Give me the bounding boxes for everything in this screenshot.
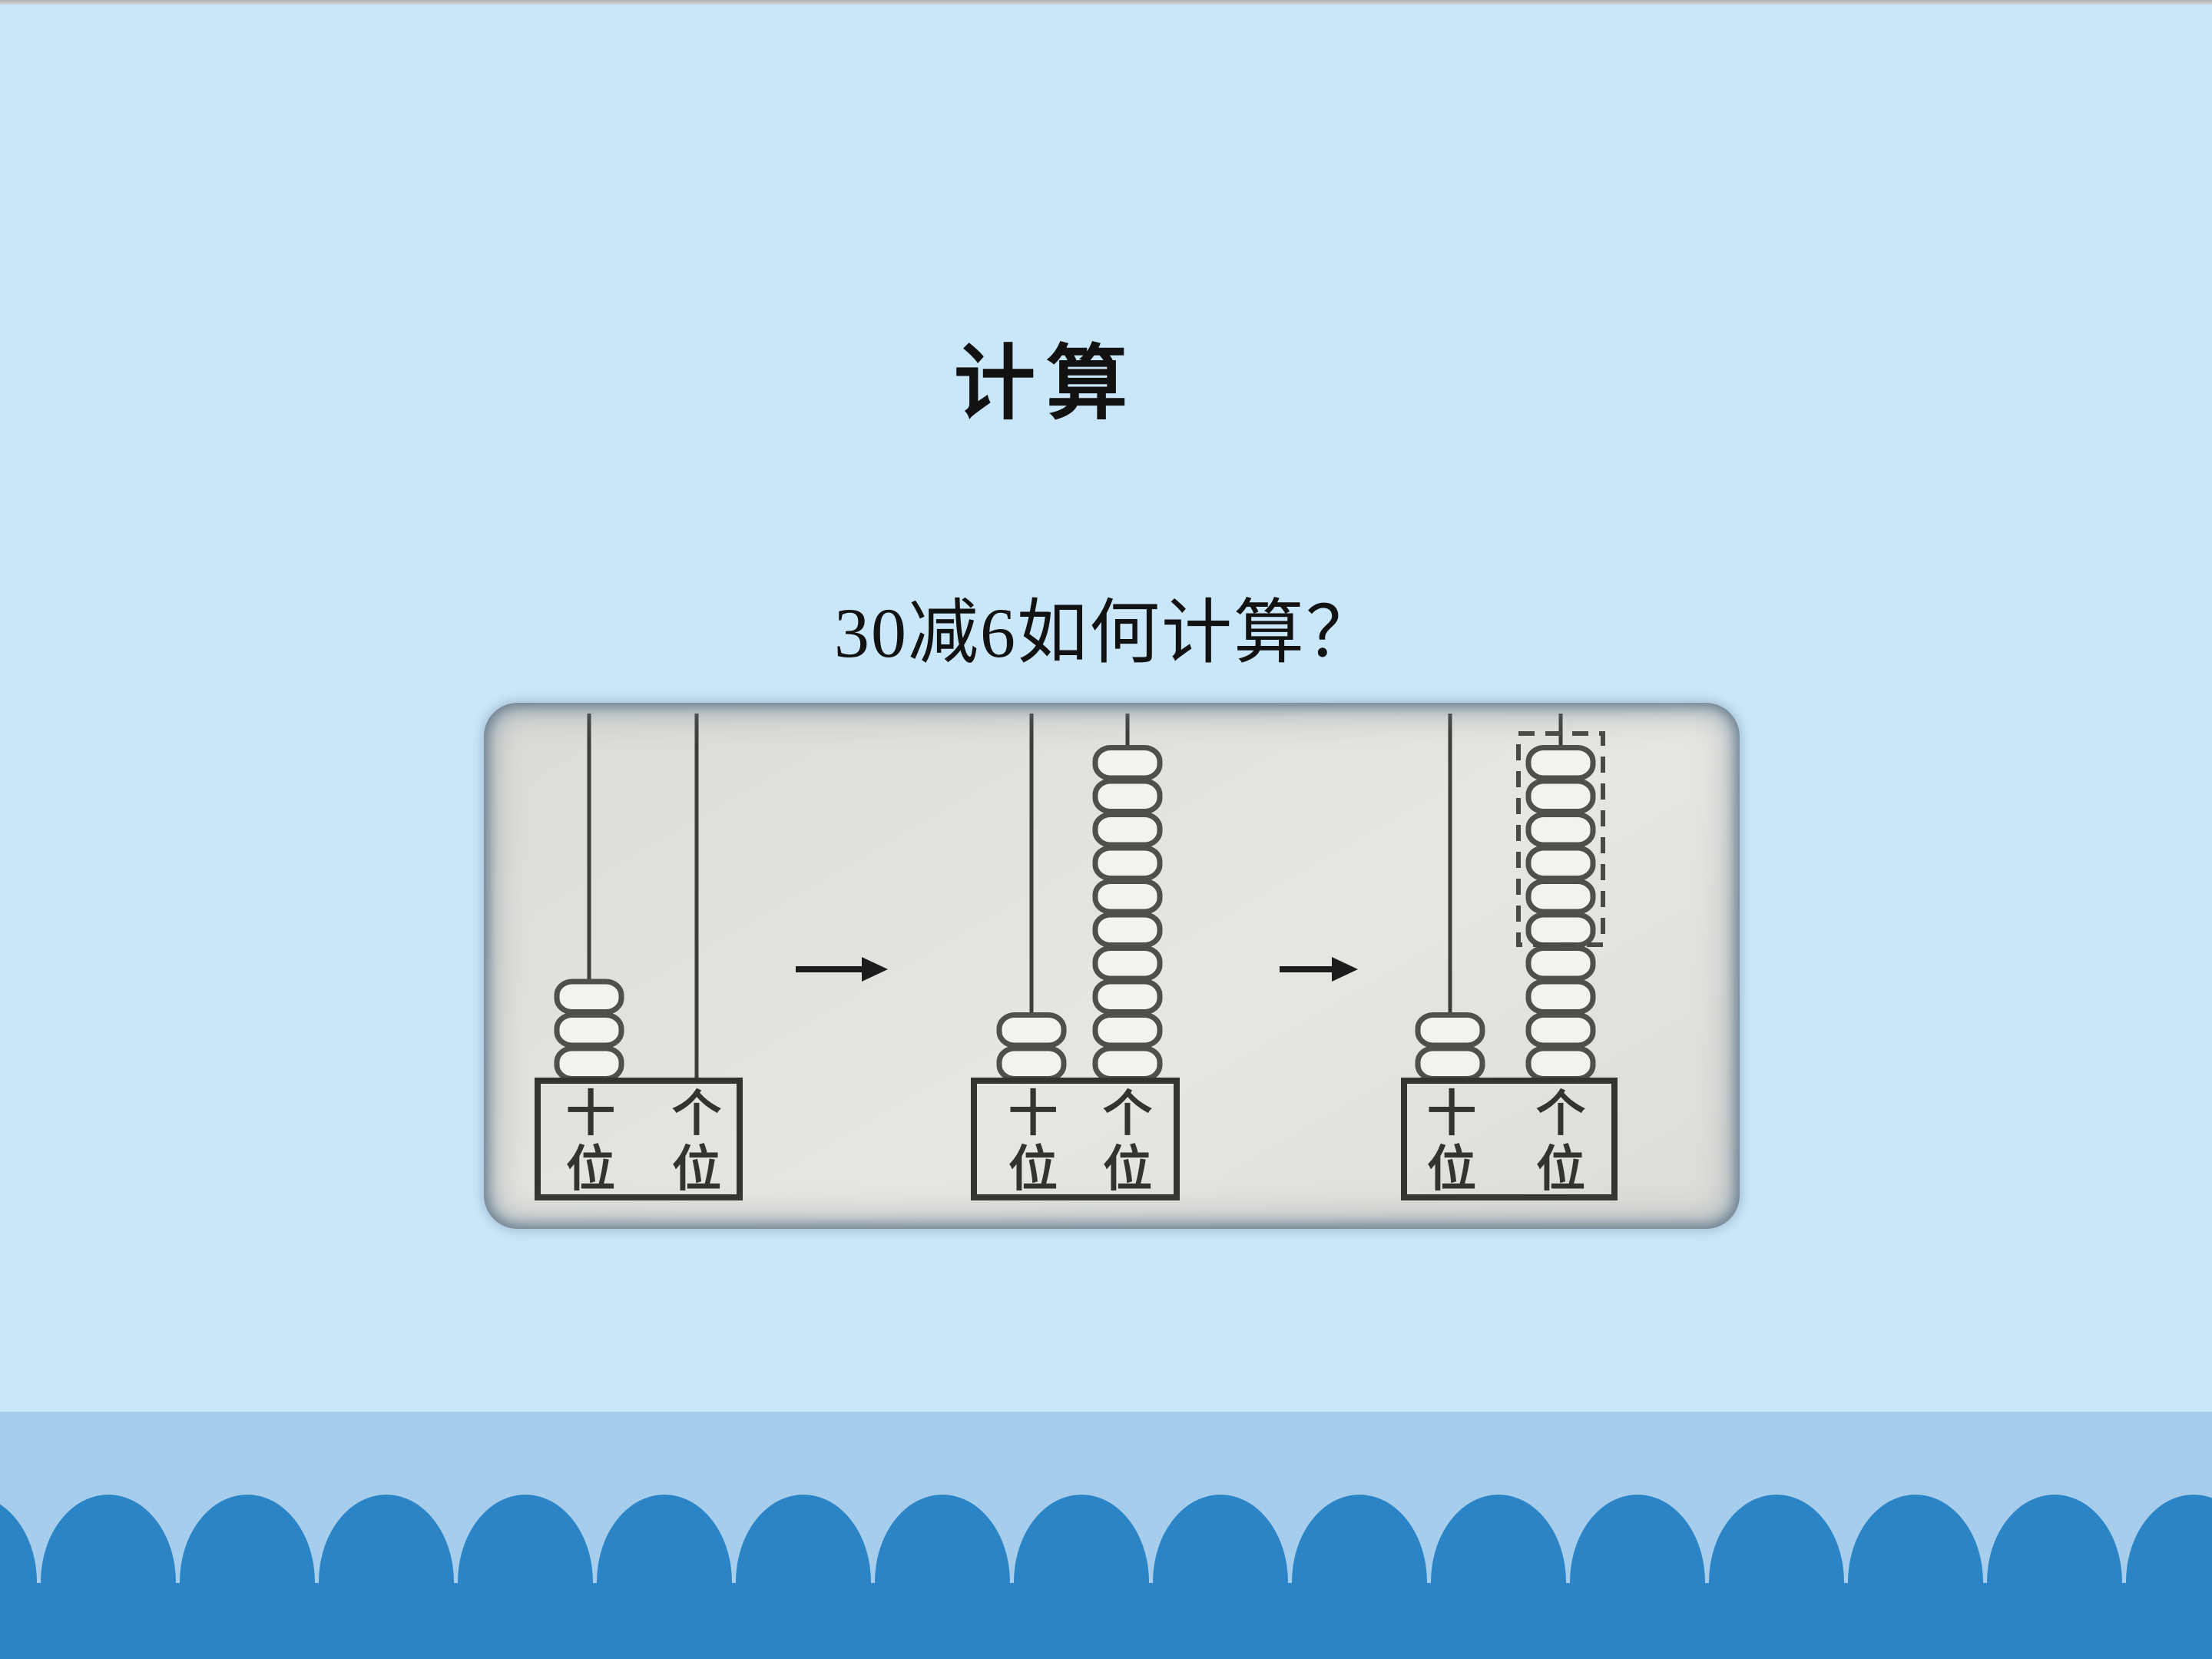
ones-bead xyxy=(1528,848,1593,879)
place-value-photo: 十位个位十位个位十位个位 xyxy=(484,703,1740,1229)
place-label: 十 xyxy=(1427,1087,1476,1141)
place-label: 位 xyxy=(1008,1142,1058,1197)
ones-bead xyxy=(1095,982,1160,1012)
screen-top-edge xyxy=(0,0,2212,5)
right-arrow-icon xyxy=(1280,957,1358,982)
ones-bead xyxy=(1095,781,1160,812)
ones-bead xyxy=(1528,949,1593,979)
tens-bead xyxy=(999,1048,1064,1079)
ones-bead xyxy=(1095,1048,1160,1079)
ones-bead xyxy=(1528,1015,1593,1046)
tens-bead xyxy=(1418,1048,1482,1079)
ones-bead xyxy=(1528,748,1593,779)
place-label: 位 xyxy=(1427,1142,1476,1197)
ones-bead xyxy=(1095,915,1160,945)
wave-decoration xyxy=(0,1352,2212,1659)
right-arrow-icon xyxy=(796,957,888,982)
place-label: 位 xyxy=(566,1142,615,1197)
abacus-thirty: 十位个位 xyxy=(538,714,740,1197)
ones-bead xyxy=(1095,748,1160,779)
ones-bead xyxy=(1095,882,1160,912)
question-text: 30减6如何计算？ xyxy=(0,596,2212,671)
abacus-regrouped: 十位个位 xyxy=(974,714,1177,1197)
ones-bead xyxy=(1528,882,1593,912)
slide-title: 计算 xyxy=(770,338,1323,432)
ones-bead xyxy=(1095,815,1160,846)
tens-bead xyxy=(557,1015,621,1046)
ones-bead xyxy=(1528,815,1593,846)
abacus-figure: 十位个位十位个位十位个位 xyxy=(484,703,1740,1229)
ones-bead xyxy=(1095,949,1160,979)
place-label: 个 xyxy=(1536,1087,1585,1141)
place-label: 位 xyxy=(1103,1142,1152,1197)
slide: { "slide": { "title": "计算", "question": … xyxy=(0,0,2212,1659)
ones-bead xyxy=(1528,781,1593,812)
ones-bead xyxy=(1095,848,1160,879)
ones-bead xyxy=(1095,1015,1160,1046)
place-label: 个 xyxy=(672,1087,721,1141)
tens-bead xyxy=(557,982,621,1012)
tens-bead xyxy=(999,1015,1064,1046)
tens-bead xyxy=(1418,1015,1482,1046)
place-label: 位 xyxy=(672,1142,721,1197)
ones-bead xyxy=(1528,915,1593,945)
place-label: 位 xyxy=(1536,1142,1585,1197)
place-label: 十 xyxy=(566,1087,615,1141)
ones-bead xyxy=(1528,1048,1593,1079)
place-label: 十 xyxy=(1008,1087,1058,1141)
abacus-subtract-six: 十位个位 xyxy=(1404,714,1614,1197)
place-label: 个 xyxy=(1103,1087,1152,1141)
ones-bead xyxy=(1528,982,1593,1012)
tens-bead xyxy=(557,1048,621,1079)
